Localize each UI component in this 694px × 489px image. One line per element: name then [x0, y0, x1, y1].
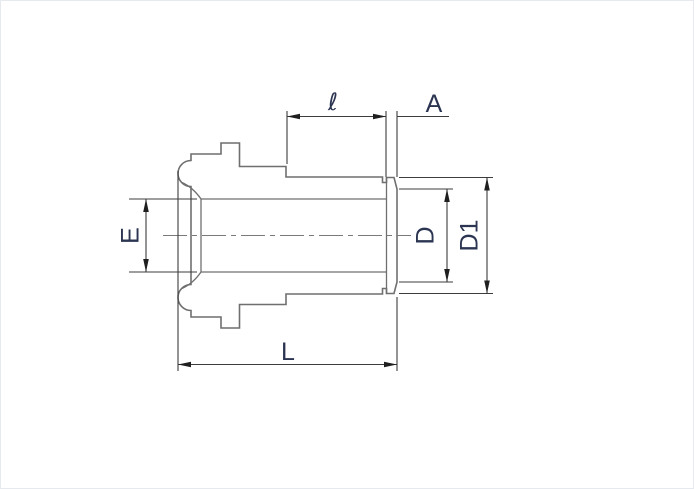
gland-technical-drawing: ℓ A E D D1 L [1, 1, 694, 489]
d1-dim-arrow-up [484, 178, 490, 191]
stub-length-label: ℓ [327, 88, 338, 116]
l-dim-arrow-right [373, 114, 386, 120]
e-dim-arrow-up [143, 199, 149, 212]
d-dim-arrow-down [444, 269, 450, 282]
e-dim-arrow-down [143, 259, 149, 272]
d-dim-arrow-up [444, 189, 450, 202]
flange-thickness-label: A [426, 90, 443, 118]
l-dim-arrow-left [287, 114, 300, 120]
dimension-labels-group: ℓ A E D D1 L [117, 88, 484, 366]
flange-diameter-label: D1 [456, 220, 484, 252]
bore-diameter-label: E [117, 227, 145, 244]
l-overall-arrow-right [384, 362, 397, 368]
l-overall-arrow-left [178, 362, 191, 368]
overall-length-label: L [281, 338, 295, 366]
face-diameter-label: D [412, 226, 440, 244]
drawing-canvas: ℓ A E D D1 L [0, 0, 694, 489]
d1-dim-arrow-down [484, 281, 490, 294]
